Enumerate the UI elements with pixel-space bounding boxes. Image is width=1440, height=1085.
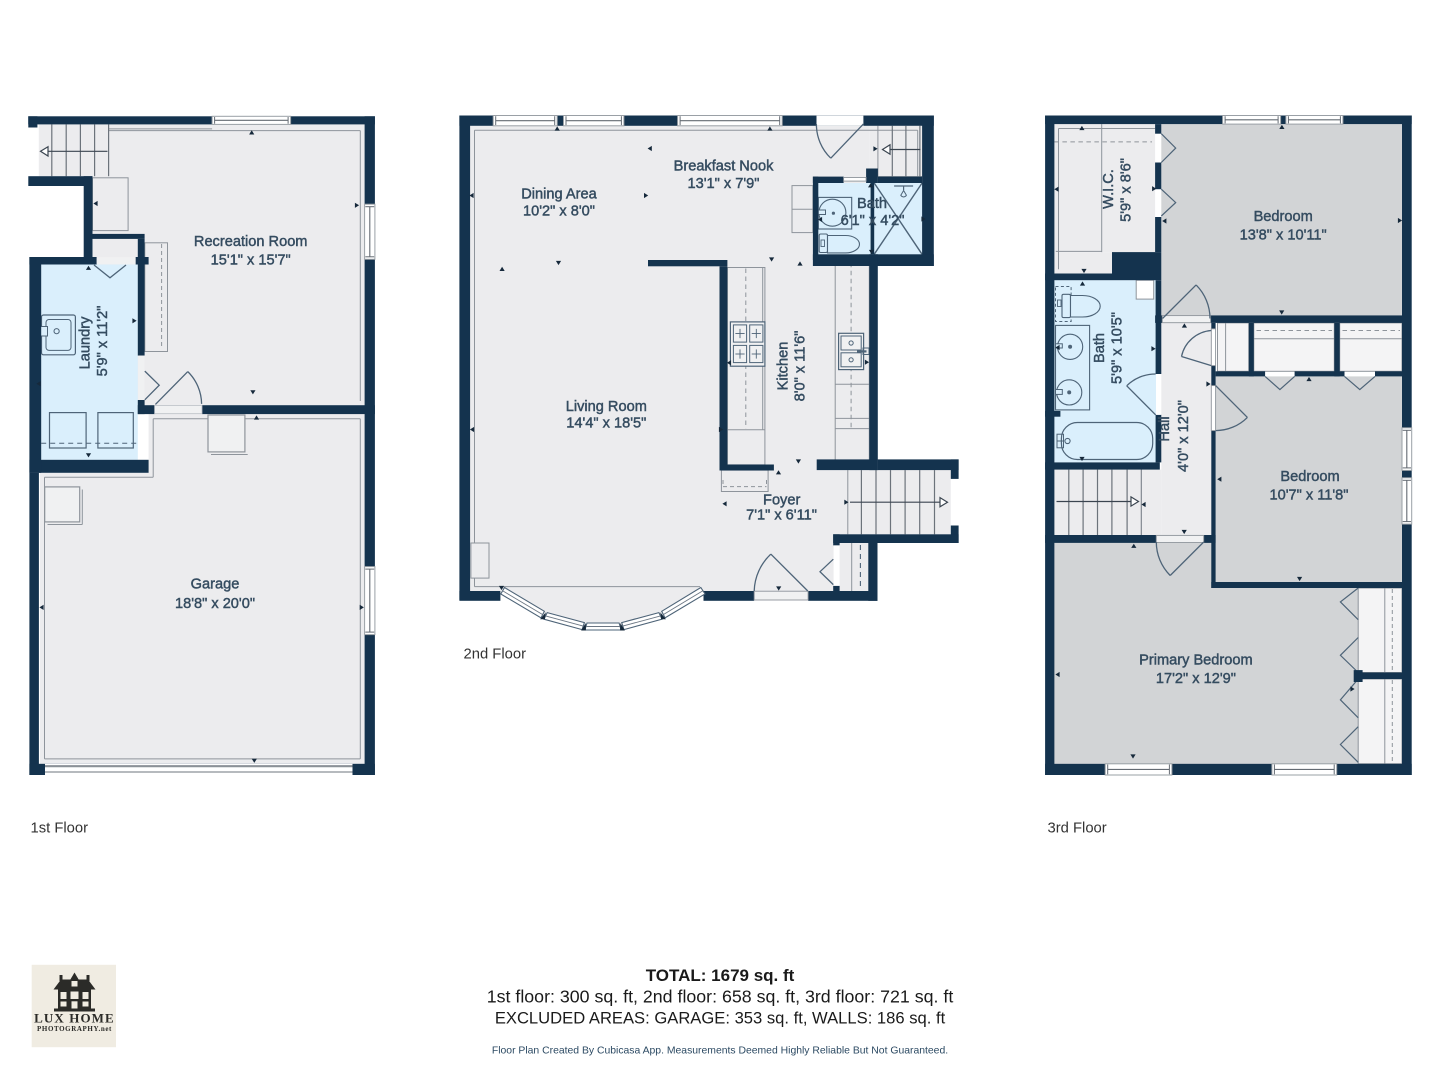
svg-text:Bath: Bath — [857, 196, 887, 212]
svg-text:LUX HOME: LUX HOME — [34, 1011, 115, 1026]
svg-text:Kitchen: Kitchen — [776, 342, 792, 391]
svg-text:3rd Floor: 3rd Floor — [1048, 821, 1107, 837]
svg-text:5'9" x 11'2": 5'9" x 11'2" — [95, 306, 111, 377]
svg-text:Dining Area: Dining Area — [521, 187, 597, 203]
svg-text:6'1" x 4'2": 6'1" x 4'2" — [841, 213, 905, 229]
svg-text:W.I.C.: W.I.C. — [1101, 169, 1117, 209]
svg-text:Living Room: Living Room — [566, 399, 647, 415]
svg-text:4'0" x 12'0": 4'0" x 12'0" — [1176, 400, 1192, 472]
svg-text:5'9" x 10'5": 5'9" x 10'5" — [1110, 312, 1126, 384]
svg-text:Bedroom: Bedroom — [1280, 469, 1339, 485]
svg-text:15'1" x 15'7": 15'1" x 15'7" — [211, 253, 291, 269]
svg-text:Recreation Room: Recreation Room — [194, 234, 308, 250]
svg-text:14'4" x 18'5": 14'4" x 18'5" — [566, 416, 646, 432]
svg-text:Garage: Garage — [191, 577, 240, 593]
svg-text:PHOTOGRAPHY.net: PHOTOGRAPHY.net — [37, 1025, 112, 1033]
svg-text:Foyer: Foyer — [763, 493, 800, 509]
svg-text:18'8" x 20'0": 18'8" x 20'0" — [175, 596, 255, 612]
svg-text:EXCLUDED AREAS: GARAGE: 353 sq: EXCLUDED AREAS: GARAGE: 353 sq. ft, WALL… — [495, 1009, 946, 1028]
svg-text:5'9" x 8'6": 5'9" x 8'6" — [1119, 158, 1135, 222]
svg-text:Bedroom: Bedroom — [1254, 209, 1313, 225]
svg-text:Breakfast Nook: Breakfast Nook — [674, 159, 774, 175]
svg-text:13'8" x 10'11": 13'8" x 10'11" — [1240, 228, 1327, 244]
svg-text:8'0" x 11'6": 8'0" x 11'6" — [793, 331, 809, 402]
svg-text:10'2" x 8'0": 10'2" x 8'0" — [523, 204, 595, 220]
svg-text:7'1" x 6'11": 7'1" x 6'11" — [746, 508, 817, 524]
svg-text:Floor Plan Created By Cubicasa: Floor Plan Created By Cubicasa App. Meas… — [492, 1046, 948, 1057]
svg-text:1st floor: 300 sq. ft, 2nd flo: 1st floor: 300 sq. ft, 2nd floor: 658 sq… — [487, 987, 954, 1007]
svg-text:17'2" x 12'9": 17'2" x 12'9" — [1156, 671, 1236, 687]
svg-text:TOTAL: 1679 sq. ft: TOTAL: 1679 sq. ft — [646, 966, 795, 985]
svg-text:13'1" x 7'9": 13'1" x 7'9" — [688, 176, 760, 192]
svg-text:Primary Bedroom: Primary Bedroom — [1139, 653, 1253, 669]
svg-text:Bath: Bath — [1092, 333, 1108, 363]
svg-text:1st Floor: 1st Floor — [31, 821, 89, 837]
svg-text:Laundry: Laundry — [78, 316, 94, 369]
svg-text:10'7" x 11'8": 10'7" x 11'8" — [1270, 488, 1349, 504]
svg-text:2nd Floor: 2nd Floor — [464, 647, 527, 663]
svg-text:Hall: Hall — [1157, 416, 1173, 441]
